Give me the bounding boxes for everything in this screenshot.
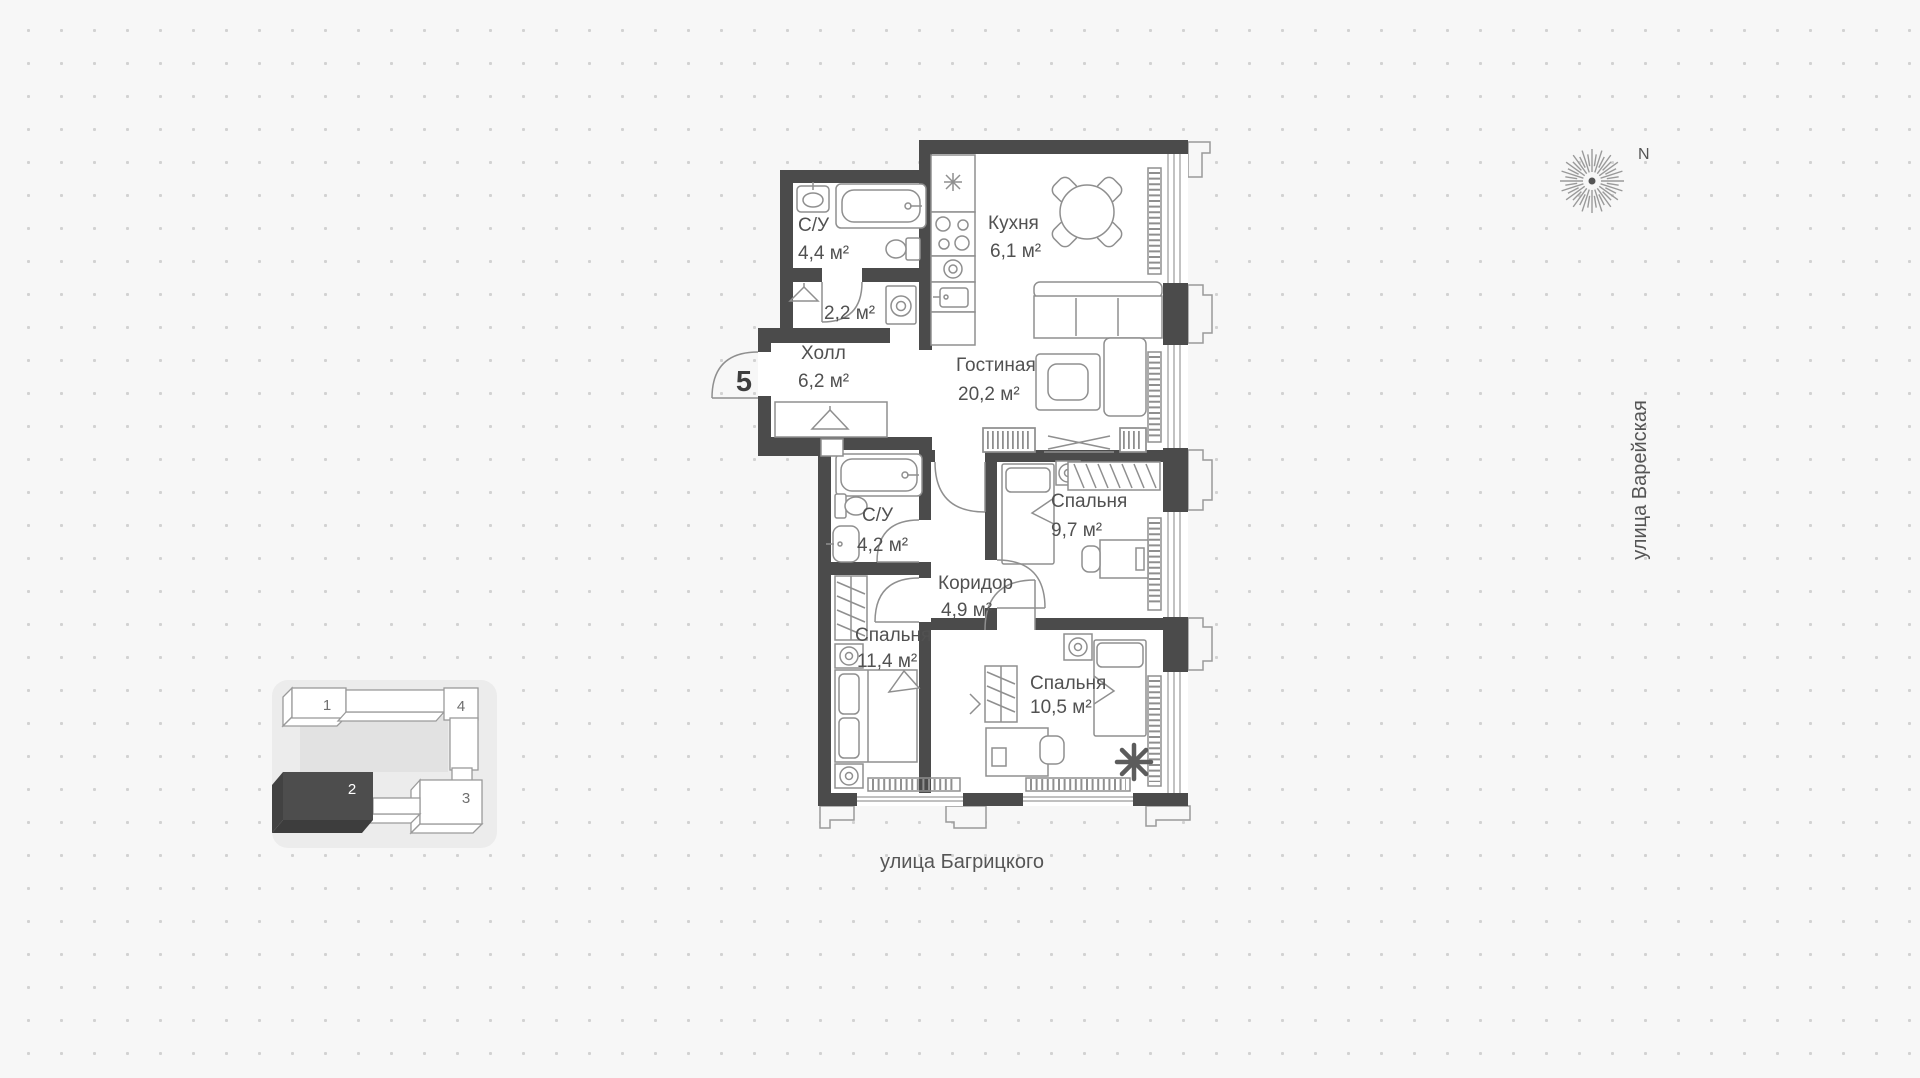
street-label-bottom: улица Багрицкого (880, 851, 1044, 873)
room-area-bedroom-bottom: 10,5 м² (1030, 697, 1092, 718)
minimap-block-3-bottom (411, 824, 482, 833)
building-minimap: 1 2 3 4 (272, 680, 497, 848)
minimap-block-2-highlighted (272, 772, 373, 833)
minimap-label-1: 1 (323, 697, 331, 714)
desk-icon (1082, 540, 1148, 578)
room-name-hall: Холл (801, 343, 846, 364)
room-name-kitchen: Кухня (988, 213, 1039, 234)
floor-plan-canvas: С/У 4,4 м² 2,2 м² Кухня 6,1 м² Холл 6,2 … (0, 0, 1920, 1078)
minimap-label-3: 3 (462, 790, 470, 807)
room-area-bedroom-left: 11,4 м² (857, 651, 917, 672)
minimap-block-1 (292, 688, 346, 718)
room-area-bathroom-mid: 4,2 м² (857, 535, 908, 556)
shaft-box (821, 439, 843, 456)
room-area-corridor: 4,9 м² (941, 600, 992, 621)
room-area-bathroom-top: 4,4 м² (798, 243, 849, 264)
street-label-right: улица Варейская (1629, 400, 1651, 560)
room-name-corridor: Коридор (938, 573, 1013, 594)
compass-north-label: N (1638, 146, 1650, 163)
room-name-bathroom-mid: С/У (862, 505, 894, 526)
coffee-table-icon (1036, 354, 1100, 410)
room-name-bedroom-right: Спальня (1051, 491, 1127, 512)
room-name-bedroom-left: Спальня (855, 625, 931, 646)
apartment-number: 5 (736, 366, 752, 398)
toilet-icon (906, 238, 920, 260)
compass-rose (1560, 149, 1624, 213)
bed-icon (835, 670, 919, 762)
wardrobe-icon (1068, 462, 1160, 490)
bed-icon (1002, 464, 1054, 564)
floor-plan-page: С/У 4,4 м² 2,2 м² Кухня 6,1 м² Холл 6,2 … (0, 0, 1920, 1078)
hall-closet (775, 402, 887, 437)
sink-icon (833, 526, 859, 562)
room-name-living: Гостиная (956, 355, 1036, 376)
vent-icon (944, 173, 962, 191)
room-area-living: 20,2 м² (958, 384, 1020, 405)
room-area-kitchen: 6,1 м² (990, 241, 1041, 262)
room-name-bedroom-bottom: Спальня (1030, 673, 1106, 694)
wardrobe-icon (985, 666, 1017, 722)
plant-icon (1117, 745, 1151, 779)
minimap-label-4: 4 (457, 698, 465, 715)
room-area-hall: 6,2 м² (798, 371, 849, 392)
minimap-block-3 (420, 780, 482, 824)
minimap-label-2: 2 (348, 781, 356, 798)
dining-table-icon (1049, 174, 1124, 249)
room-area-nook: 2,2 м² (824, 303, 875, 324)
room-area-bedroom-right: 9,7 м² (1051, 520, 1102, 541)
room-name-bathroom-top: С/У (798, 215, 830, 236)
